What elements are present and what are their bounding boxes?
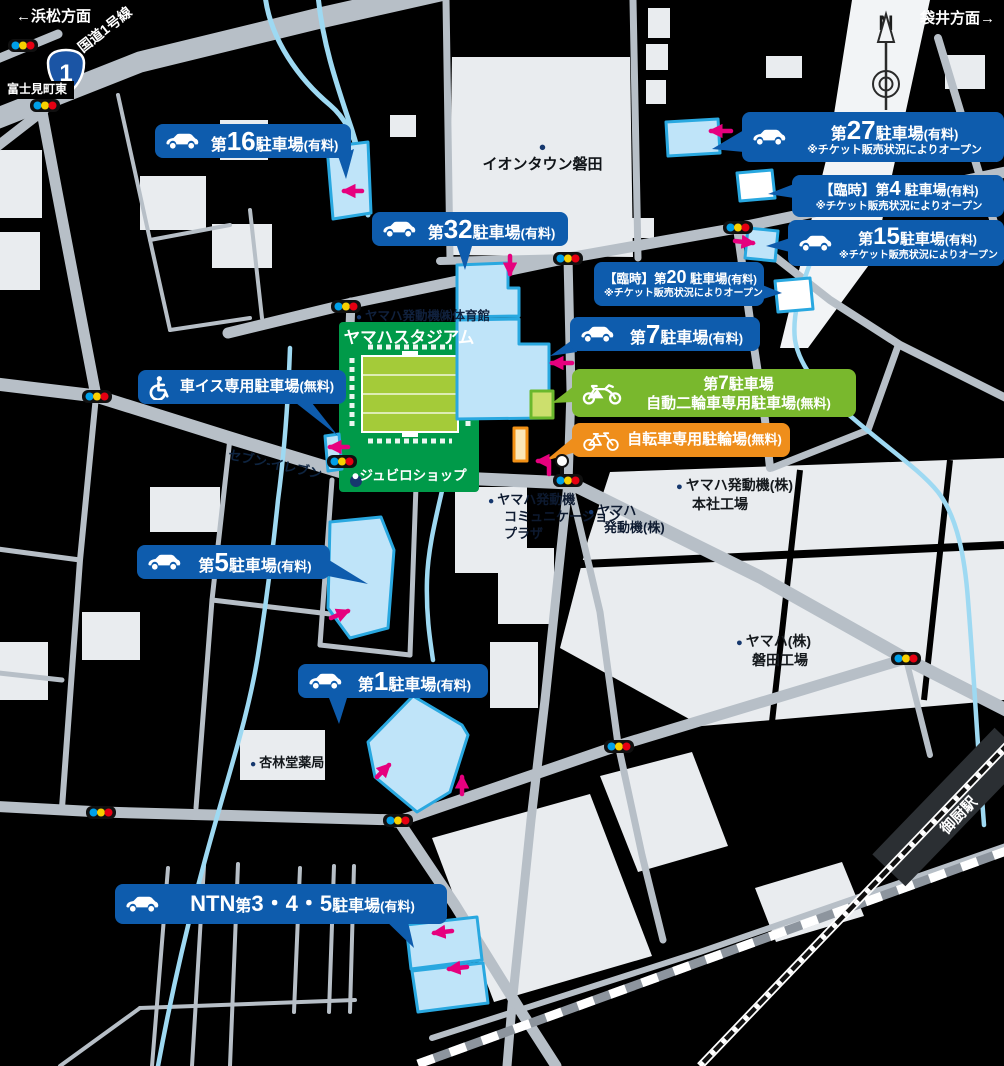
parking-label-text: 第15駐車場(有料)※チケット販売状況によりオープン [839,224,996,263]
location-dot: ● [250,759,256,770]
location-dot: ● [450,141,635,154]
bicycle-icon [582,429,620,452]
parking-area-27 [666,119,720,156]
location-dot: ● [588,507,594,518]
car-icon [580,325,614,344]
parking-label-no27: 第27駐車場(有料)※チケット販売状況によりオープン [742,112,1004,162]
hamamatsu-direction: ←浜松方面 [16,7,91,27]
jubilo-shop: ●ジュビロショップ [341,467,477,485]
parking-area-4 [737,170,775,201]
parking-label-no32: 第32駐車場(有料) [372,212,568,246]
car-icon [308,672,342,691]
parking-label-no7-motorcycle: 第7駐車場自動二輪車専用駐車場(無料) [572,369,856,417]
aeon-town-iwata: ●イオンタウン磐田 [450,141,635,174]
parking-label-no4-temp: 【臨時】第4 駐車場(有料)※チケット販売状況によりオープン [792,175,1004,217]
yamaha-gym: ●ヤマハ発動機㈱体育館 [356,308,490,324]
yamaha-hatsudoki: ●ヤマハ発動機(株) [588,503,665,537]
traffic-light-icon [553,252,583,265]
parking-label-text: 【臨時】第20 駐車場(有料)※チケット販売状況によりオープン [604,268,756,300]
ticket-sales-note: ※チケット販売状況によりオープン [604,288,756,301]
car-icon [165,132,199,151]
traffic-light-icon [723,221,753,234]
parking-label-no5: 第5駐車場(有料) [137,545,330,579]
parking-area-ntn-a [406,917,482,969]
traffic-light-icon [604,740,634,753]
parking-label-no7: 第7駐車場(有料) [570,317,760,351]
parking-label-text: 第1駐車場(有料) [349,667,480,696]
parking-label-text: 【臨時】第4 駐車場(有料)※チケット販売状況によりオープン [802,178,996,213]
parking-map: 1 N 御厨駅 第16駐車場(有料)第32駐車場(有料)第27駐車場(有料)※チ… [0,0,1004,1066]
honsha-factory: ●ヤマハ発動機(株)本社工場 [676,476,793,513]
parking-area-20 [775,278,813,312]
parking-label-text: 第27駐車場(有料)※チケット販売状況によりオープン [793,116,996,158]
traffic-light-icon [553,474,583,487]
traffic-light-icon [86,806,116,819]
parking-label-no20-temp: 【臨時】第20 駐車場(有料)※チケット販売状況によりオープン [594,262,764,306]
fukuroi-direction: 袋井方面→ [920,9,995,29]
parking-label-no15: 第15駐車場(有料)※チケット販売状況によりオープン [788,220,1004,266]
parking-area-bicycle [514,428,527,461]
kyorindo-pharmacy: ●杏林堂薬局 [250,755,324,772]
location-dot: ● [356,312,362,323]
parking-label-text: 第7駐車場自動二輪車専用駐車場(無料) [629,374,848,412]
fujimicho-higashi: 富士見町東 [0,81,74,99]
ticket-sales-note: ※チケット販売状況によりオープン [802,200,996,213]
car-icon [125,895,159,914]
motorcycle-icon [582,381,622,405]
car-icon [798,234,832,253]
location-dot: ● [676,481,683,493]
parking-label-no1: 第1駐車場(有料) [298,664,488,698]
parking-label-text: 第7駐車場(有料) [621,320,752,349]
car-icon [752,128,786,147]
traffic-light-icon [891,652,921,665]
parking-label-text: 車イス専用駐車場(無料) [176,378,338,396]
ticket-sales-note: ※チケット販売状況によりオープン [793,144,996,158]
traffic-light-icon [8,39,38,52]
parking-label-text: 自転車専用駐輪場(無料) [627,431,782,449]
parking-label-bicycle: 自転車専用駐輪場(無料) [572,423,790,457]
wheelchair-icon [148,375,169,400]
parking-label-ntn345: NTN第3・4・5駐車場(有料) [115,884,447,924]
iwata-factory: ●ヤマハ(株)磐田工場 [736,632,811,669]
traffic-light-icon [30,99,60,112]
traffic-light-icon [383,814,413,827]
parking-label-text: NTN第3・4・5駐車場(有料) [166,892,439,916]
location-dot: ● [736,637,743,649]
parking-area-motorcycle [531,391,553,418]
traffic-light-icon [82,390,112,403]
location-dot: ● [488,496,494,507]
parking-label-text: 第16駐車場(有料) [206,127,343,156]
parking-label-text: 第5駐車場(有料) [188,548,322,577]
parking-label-text: 第32駐車場(有料) [423,215,560,244]
ticket-sales-note: ※チケット販売状況によりオープン [839,250,996,263]
parking-label-no16: 第16駐車場(有料) [155,124,351,158]
car-icon [382,220,416,239]
yamaha-stadium: ヤマハスタジアム [341,328,477,349]
parking-label-wheelchair: 車イス専用駐車場(無料) [138,370,346,404]
car-icon [147,553,181,572]
